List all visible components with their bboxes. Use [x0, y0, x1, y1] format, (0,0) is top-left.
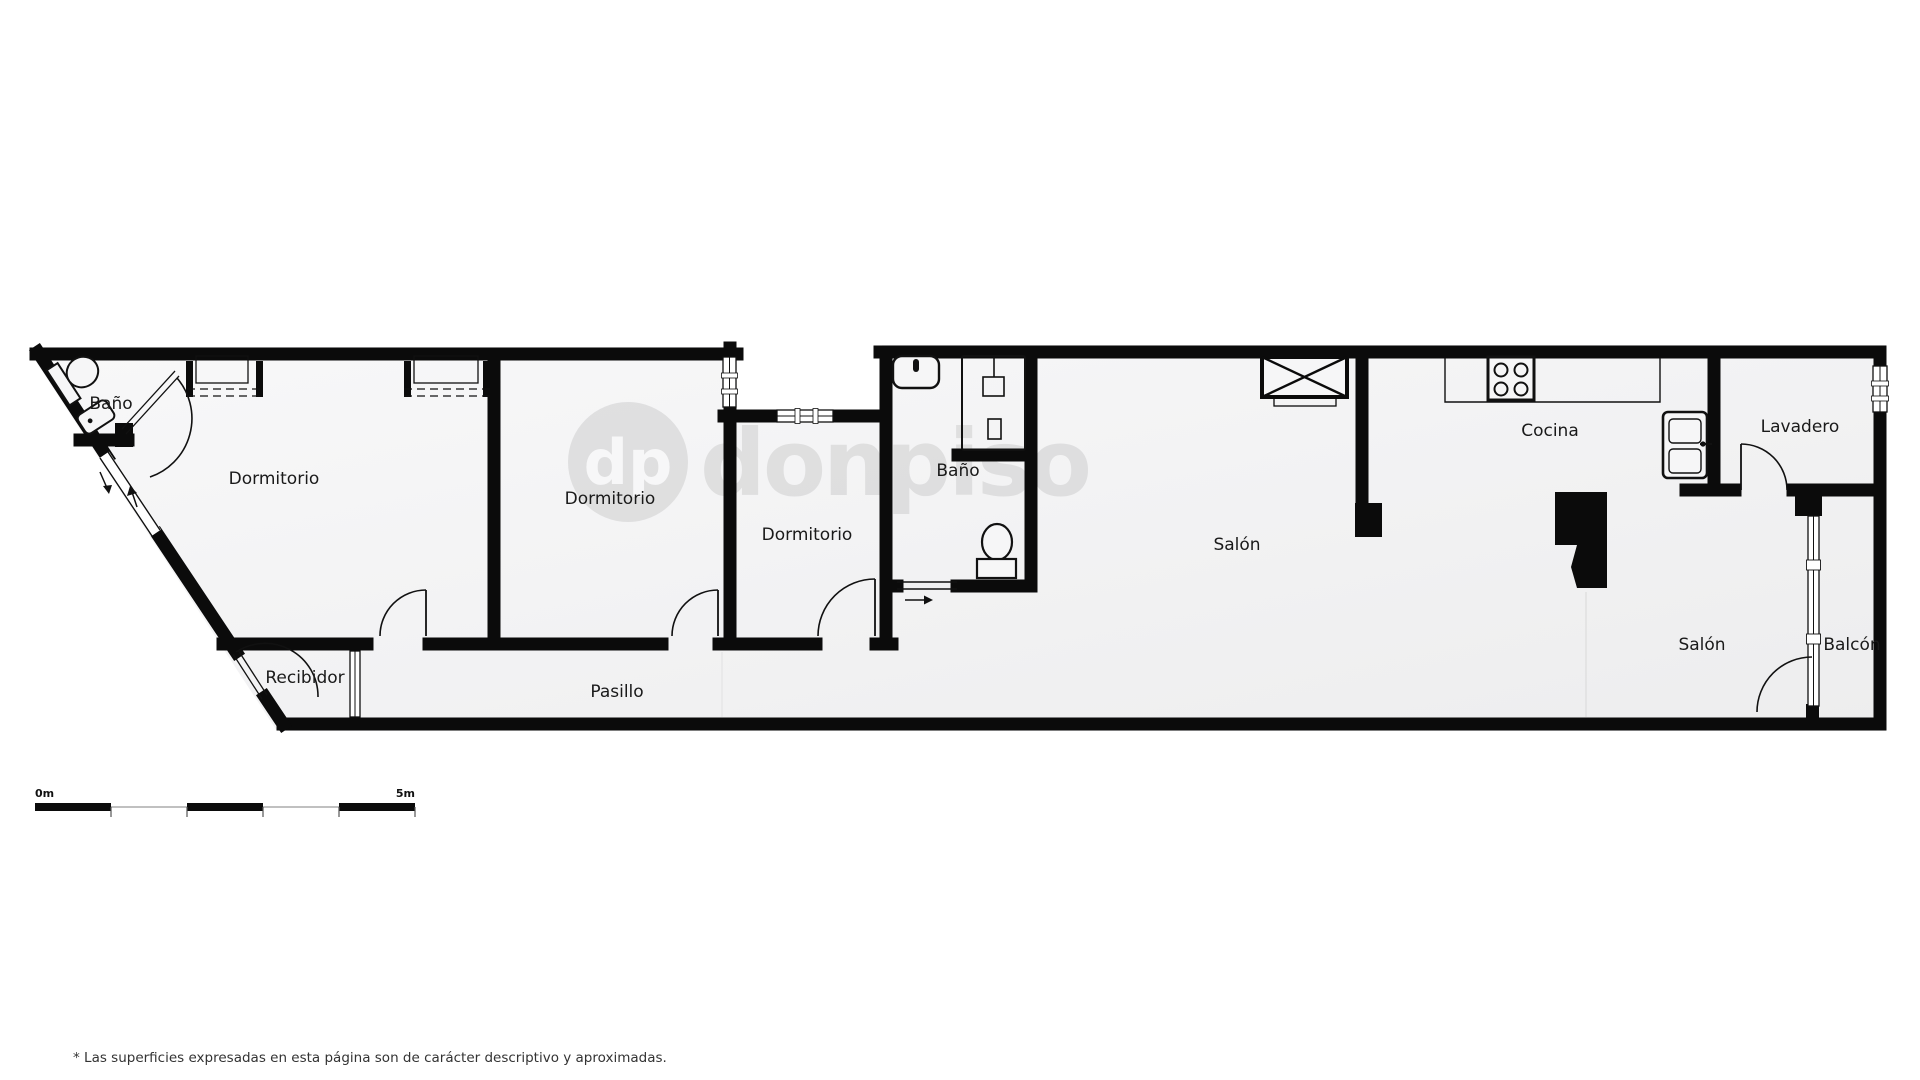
washbasin-icon — [893, 356, 939, 388]
ventilation-shaft-icon — [1262, 357, 1347, 406]
label-dormitorio2: Dormitorio — [565, 489, 656, 509]
scale-start-label: 0m — [35, 787, 54, 800]
label-recibidor: Recibidor — [265, 668, 344, 688]
scale-end-label: 5m — [396, 787, 415, 800]
label-dormitorio3: Dormitorio — [762, 525, 853, 545]
balcon-corner-block — [1795, 484, 1822, 516]
recibidor-glass-partition — [350, 651, 360, 717]
scale-bar: 0m 5m — [35, 787, 415, 817]
closet1-left-stub — [186, 361, 193, 397]
label-balcon: Balcón — [1823, 635, 1880, 655]
kitchen-sink-icon — [1663, 412, 1712, 478]
floor-plan-page: dp donpiso — [0, 0, 1920, 1080]
floor-plan-canvas: dp donpiso — [0, 0, 1920, 1080]
label-cocina: Cocina — [1521, 421, 1579, 441]
closet2-right-stub — [483, 361, 490, 397]
lavadero-window — [1872, 366, 1889, 412]
shaft-wall-foot — [1355, 503, 1382, 537]
label-lavadero: Lavadero — [1761, 417, 1840, 437]
label-bano1: Baño — [89, 394, 132, 414]
label-pasillo: Pasillo — [590, 682, 643, 702]
balcon-glazed-wall — [1807, 516, 1821, 706]
dormitorio2-window — [722, 357, 738, 407]
dormitorio3-window — [777, 409, 833, 424]
closet2-left-stub — [404, 361, 411, 397]
disclaimer-footnote: * Las superficies expresadas en esta pág… — [73, 1050, 667, 1066]
closet1-right-stub — [256, 361, 263, 397]
stove-icon — [1488, 357, 1534, 400]
label-bano2: Baño — [936, 461, 979, 481]
label-salon1: Salón — [1213, 535, 1260, 555]
label-dormitorio1: Dormitorio — [229, 469, 320, 489]
label-salon2: Salón — [1678, 635, 1725, 655]
